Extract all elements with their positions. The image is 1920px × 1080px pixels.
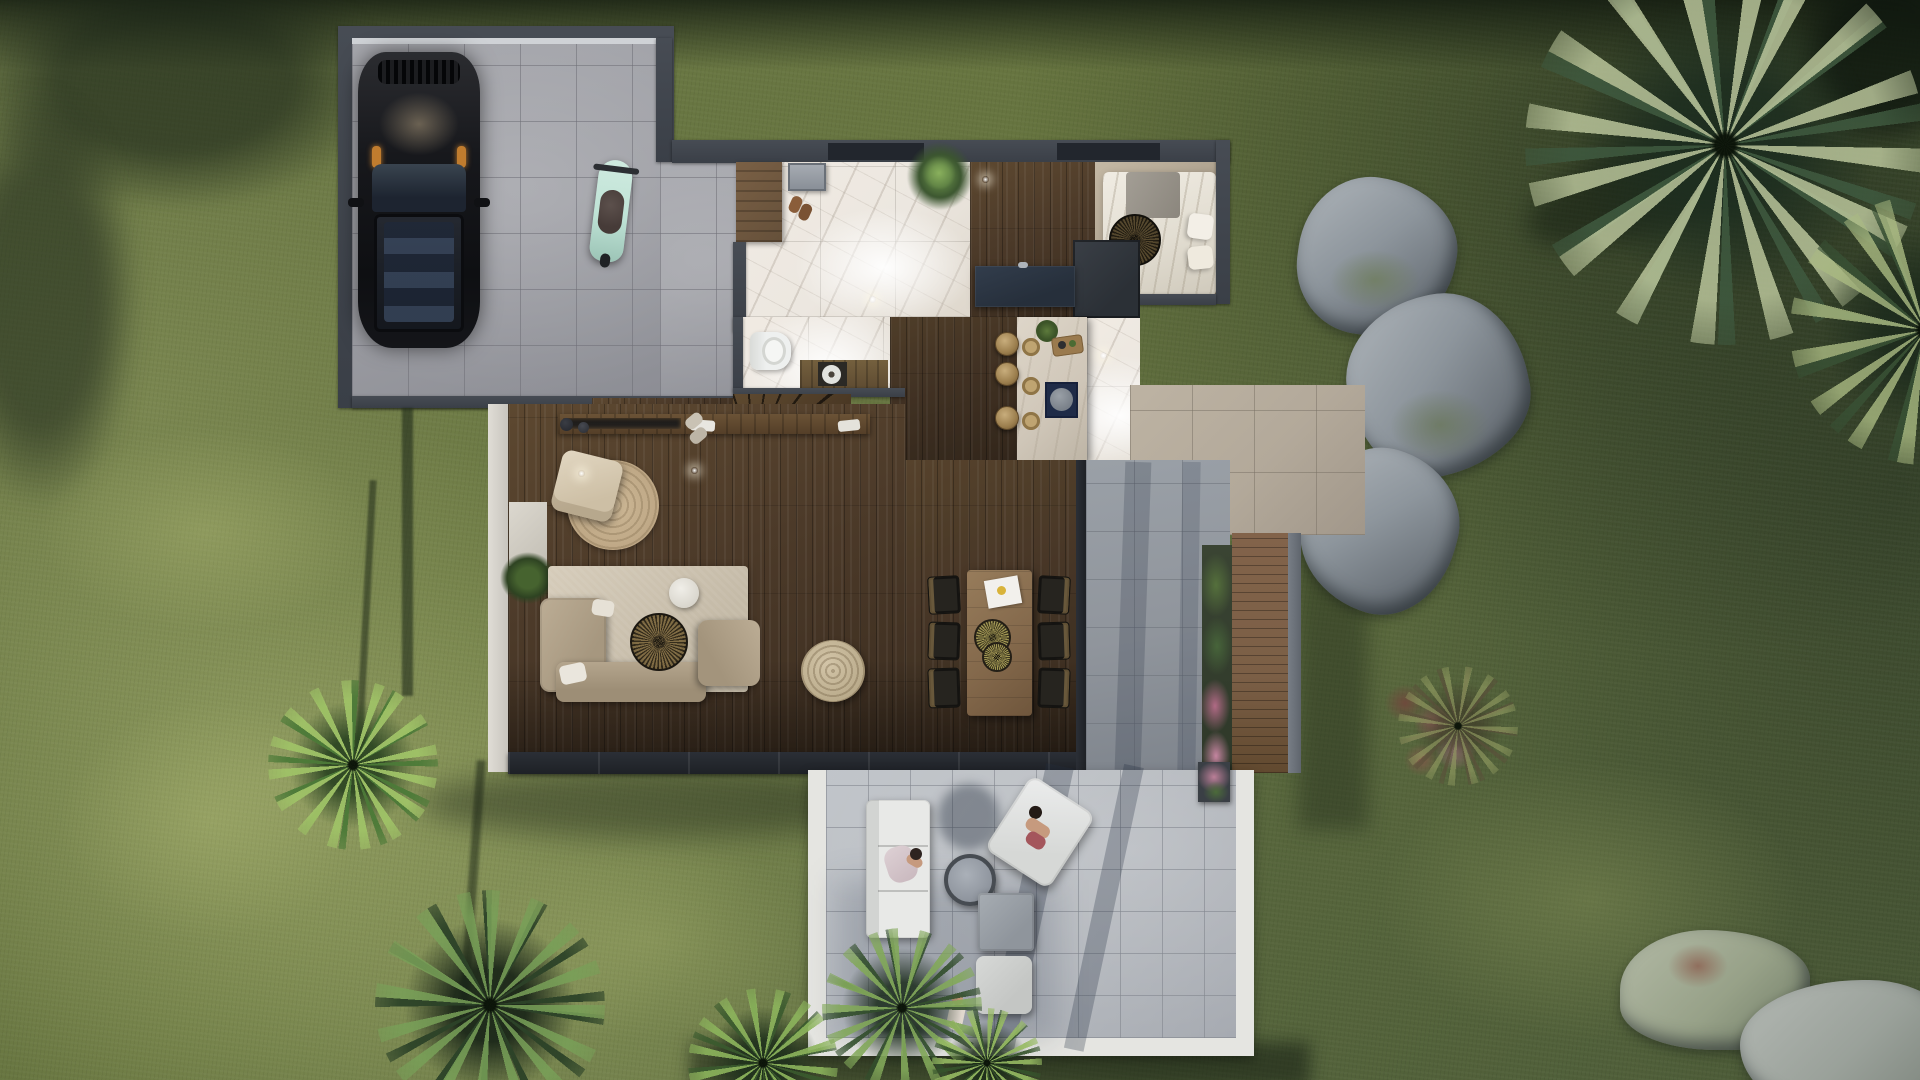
rock-moss-patch-1 bbox=[1330, 250, 1420, 310]
outdoor-side-table bbox=[978, 893, 1034, 951]
island-placemat-2 bbox=[1022, 377, 1040, 395]
entry-floor-light bbox=[869, 296, 876, 303]
tray-drink bbox=[997, 586, 1006, 595]
dining-chair-6 bbox=[1037, 667, 1070, 708]
dining-chair-2 bbox=[927, 621, 960, 660]
bar-stool-3 bbox=[995, 406, 1019, 430]
dining-chair-3 bbox=[927, 667, 960, 708]
rock-moss-patch-2 bbox=[1390, 390, 1490, 460]
bed-pillow-2 bbox=[1187, 245, 1214, 270]
vanity-rolled-towels bbox=[822, 365, 841, 384]
car bbox=[358, 52, 480, 348]
car-mirror-right bbox=[474, 198, 490, 207]
sofa-cushion-white-2 bbox=[591, 598, 615, 617]
woman-on-outdoor-sofa bbox=[884, 838, 928, 890]
coffee-table-rattan bbox=[630, 613, 688, 671]
car-cabin-interior bbox=[384, 222, 454, 322]
kitchen-faucet bbox=[1018, 262, 1028, 268]
bed-pillow-1 bbox=[1186, 212, 1214, 240]
wood-deck bbox=[1232, 533, 1288, 773]
kitchen-floor-light bbox=[1100, 352, 1107, 359]
sofa-module-right bbox=[698, 620, 760, 686]
lawn-highlight-1 bbox=[40, 430, 370, 630]
hallway-wall-light bbox=[982, 176, 989, 183]
island-sink-basin bbox=[1050, 388, 1073, 411]
north-wall-glass-2 bbox=[1057, 143, 1160, 160]
dining-chair-5 bbox=[1037, 621, 1070, 660]
round-jute-pouf bbox=[801, 640, 865, 702]
board-food-green bbox=[1069, 340, 1076, 347]
living-floor-light-2 bbox=[691, 467, 698, 474]
car-windshield bbox=[372, 164, 466, 212]
console-decor-white-2 bbox=[837, 419, 860, 432]
scene bbox=[0, 0, 1920, 1080]
kitchen-tall-cabinets bbox=[1073, 240, 1140, 318]
bathroom-wall-west bbox=[733, 317, 743, 392]
island-placemat-1 bbox=[1022, 338, 1040, 356]
kitchen-counter-navy bbox=[975, 266, 1075, 307]
floor-cushion bbox=[976, 956, 1032, 1014]
scooter-rear-wheel bbox=[599, 253, 611, 268]
planter-pink-1 bbox=[1198, 676, 1232, 736]
deck-outer-wall bbox=[1288, 533, 1301, 773]
console-vase-dark-1 bbox=[560, 418, 573, 431]
bar-stool-1 bbox=[995, 332, 1019, 356]
east-facade-glass bbox=[1076, 460, 1086, 772]
bar-stool-2 bbox=[995, 362, 1019, 386]
planter-green-2 bbox=[1200, 614, 1234, 678]
toilet-seat bbox=[762, 337, 786, 365]
woman-hair bbox=[910, 848, 922, 860]
dry-plant-bottom-right bbox=[1668, 944, 1728, 988]
garage-court-floor bbox=[660, 162, 736, 402]
console-vase-dark-2 bbox=[578, 422, 589, 433]
entry-bench bbox=[736, 162, 782, 242]
car-grille bbox=[378, 60, 460, 84]
car-mirror-left bbox=[348, 198, 364, 207]
garage-wall-east-top bbox=[656, 38, 672, 162]
dining-chair-1 bbox=[927, 575, 961, 615]
island-placemat-3 bbox=[1022, 412, 1040, 430]
entry-plant-highlight bbox=[922, 156, 956, 190]
board-food-dark bbox=[1058, 341, 1066, 349]
pendant-light-2 bbox=[982, 642, 1012, 672]
west-hedge-line bbox=[402, 408, 413, 696]
planter-green-1 bbox=[1198, 550, 1234, 620]
bed-gray-throw bbox=[1126, 172, 1180, 218]
dining-chair-4 bbox=[1037, 575, 1071, 615]
living-floor-light-1 bbox=[578, 470, 585, 477]
bedroom-wall-east bbox=[1216, 140, 1230, 304]
shoe-rack bbox=[788, 163, 826, 191]
garage-roof-trim bbox=[352, 38, 660, 44]
pouf-white bbox=[669, 578, 699, 608]
terrace-planter-green bbox=[1202, 780, 1230, 804]
